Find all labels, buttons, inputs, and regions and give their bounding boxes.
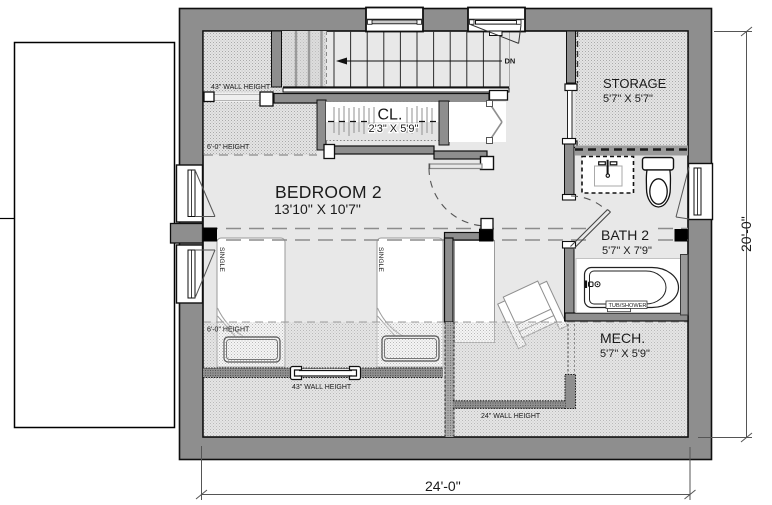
svg-text:2'3" X 5'9": 2'3" X 5'9" (369, 123, 419, 135)
svg-text:13'10" X 10'7": 13'10" X 10'7" (274, 201, 361, 217)
svg-text:43" WALL HEIGHT: 43" WALL HEIGHT (292, 384, 352, 391)
svg-text:6'-0" HEIGHT: 6'-0" HEIGHT (207, 144, 250, 151)
svg-text:5'7" X 7'9": 5'7" X 7'9" (602, 245, 652, 257)
svg-text:SINGLE: SINGLE (377, 247, 384, 272)
svg-text:BEDROOM 2: BEDROOM 2 (275, 182, 382, 202)
svg-text:MECH.: MECH. (600, 330, 645, 346)
svg-text:SINGLE: SINGLE (218, 247, 225, 272)
svg-text:BATH 2: BATH 2 (601, 227, 649, 243)
svg-text:STORAGE: STORAGE (603, 76, 667, 91)
svg-text:20'-0": 20'-0" (738, 216, 754, 252)
svg-text:5'7" X 5'9": 5'7" X 5'9" (600, 348, 650, 360)
svg-text:24'-0": 24'-0" (425, 478, 461, 494)
svg-text:DN: DN (505, 57, 516, 66)
svg-text:5'7" X 5'7": 5'7" X 5'7" (603, 93, 653, 105)
svg-text:43" WALL HEIGHT: 43" WALL HEIGHT (211, 84, 271, 91)
svg-text:CL.: CL. (378, 107, 403, 124)
svg-text:24" WALL HEIGHT: 24" WALL HEIGHT (481, 413, 541, 420)
svg-text:6'-0" HEIGHT: 6'-0" HEIGHT (207, 327, 250, 334)
